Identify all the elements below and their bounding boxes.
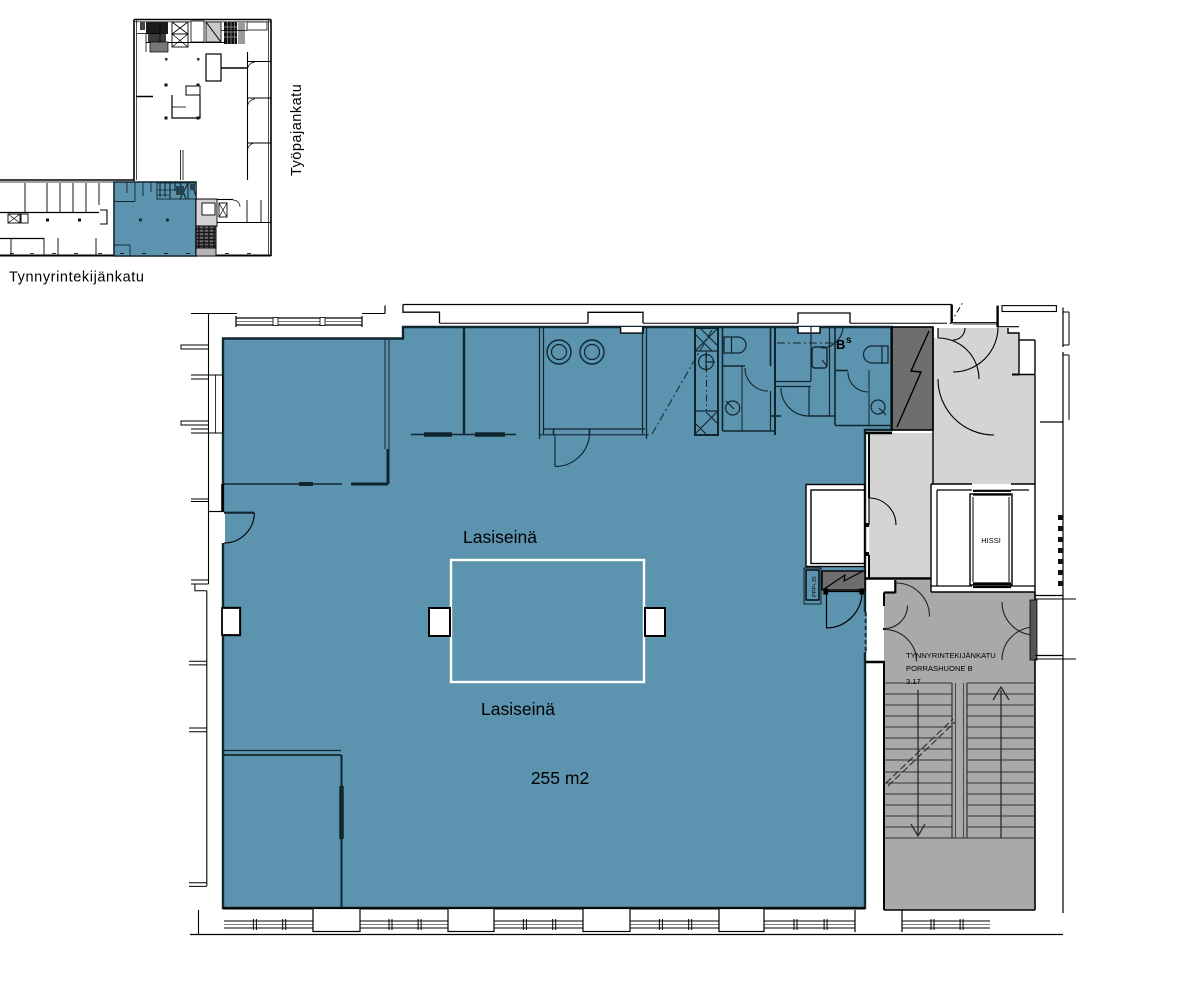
svg-text:Lasiseinä: Lasiseinä [463, 527, 537, 547]
svg-text:3.17: 3.17 [906, 677, 921, 686]
svg-text:255 m2: 255 m2 [531, 768, 589, 788]
svg-text:PORRASHUONE B: PORRASHUONE B [906, 664, 973, 673]
svg-text:Lasiseinä: Lasiseinä [481, 699, 555, 719]
svg-text:HISSI: HISSI [981, 536, 1001, 545]
svg-text:Työpajankatu: Työpajankatu [289, 84, 305, 176]
svg-text:Tynnyrintekijänkatu: Tynnyrintekijänkatu [9, 270, 145, 286]
svg-text:PPP+JS: PPP+JS [812, 576, 818, 597]
svg-text:s: s [846, 335, 852, 346]
svg-text:TYNNYRINTEKIJÄNKATU: TYNNYRINTEKIJÄNKATU [906, 651, 996, 660]
svg-text:B: B [836, 337, 845, 352]
